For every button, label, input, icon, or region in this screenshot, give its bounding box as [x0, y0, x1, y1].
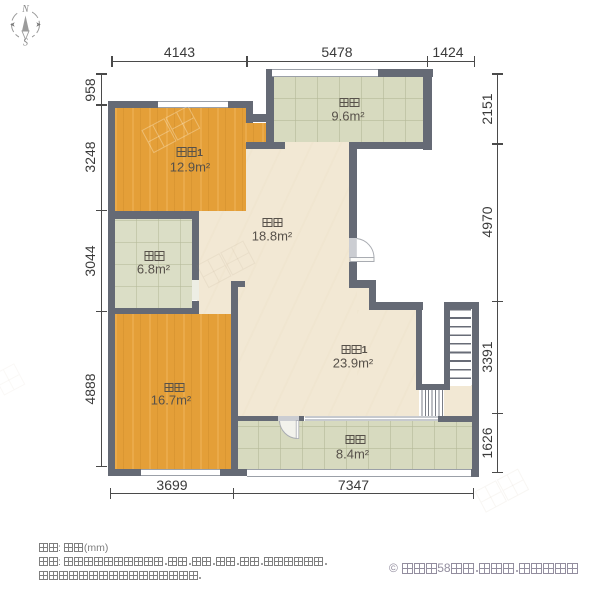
svg-text:N: N — [21, 4, 30, 15]
